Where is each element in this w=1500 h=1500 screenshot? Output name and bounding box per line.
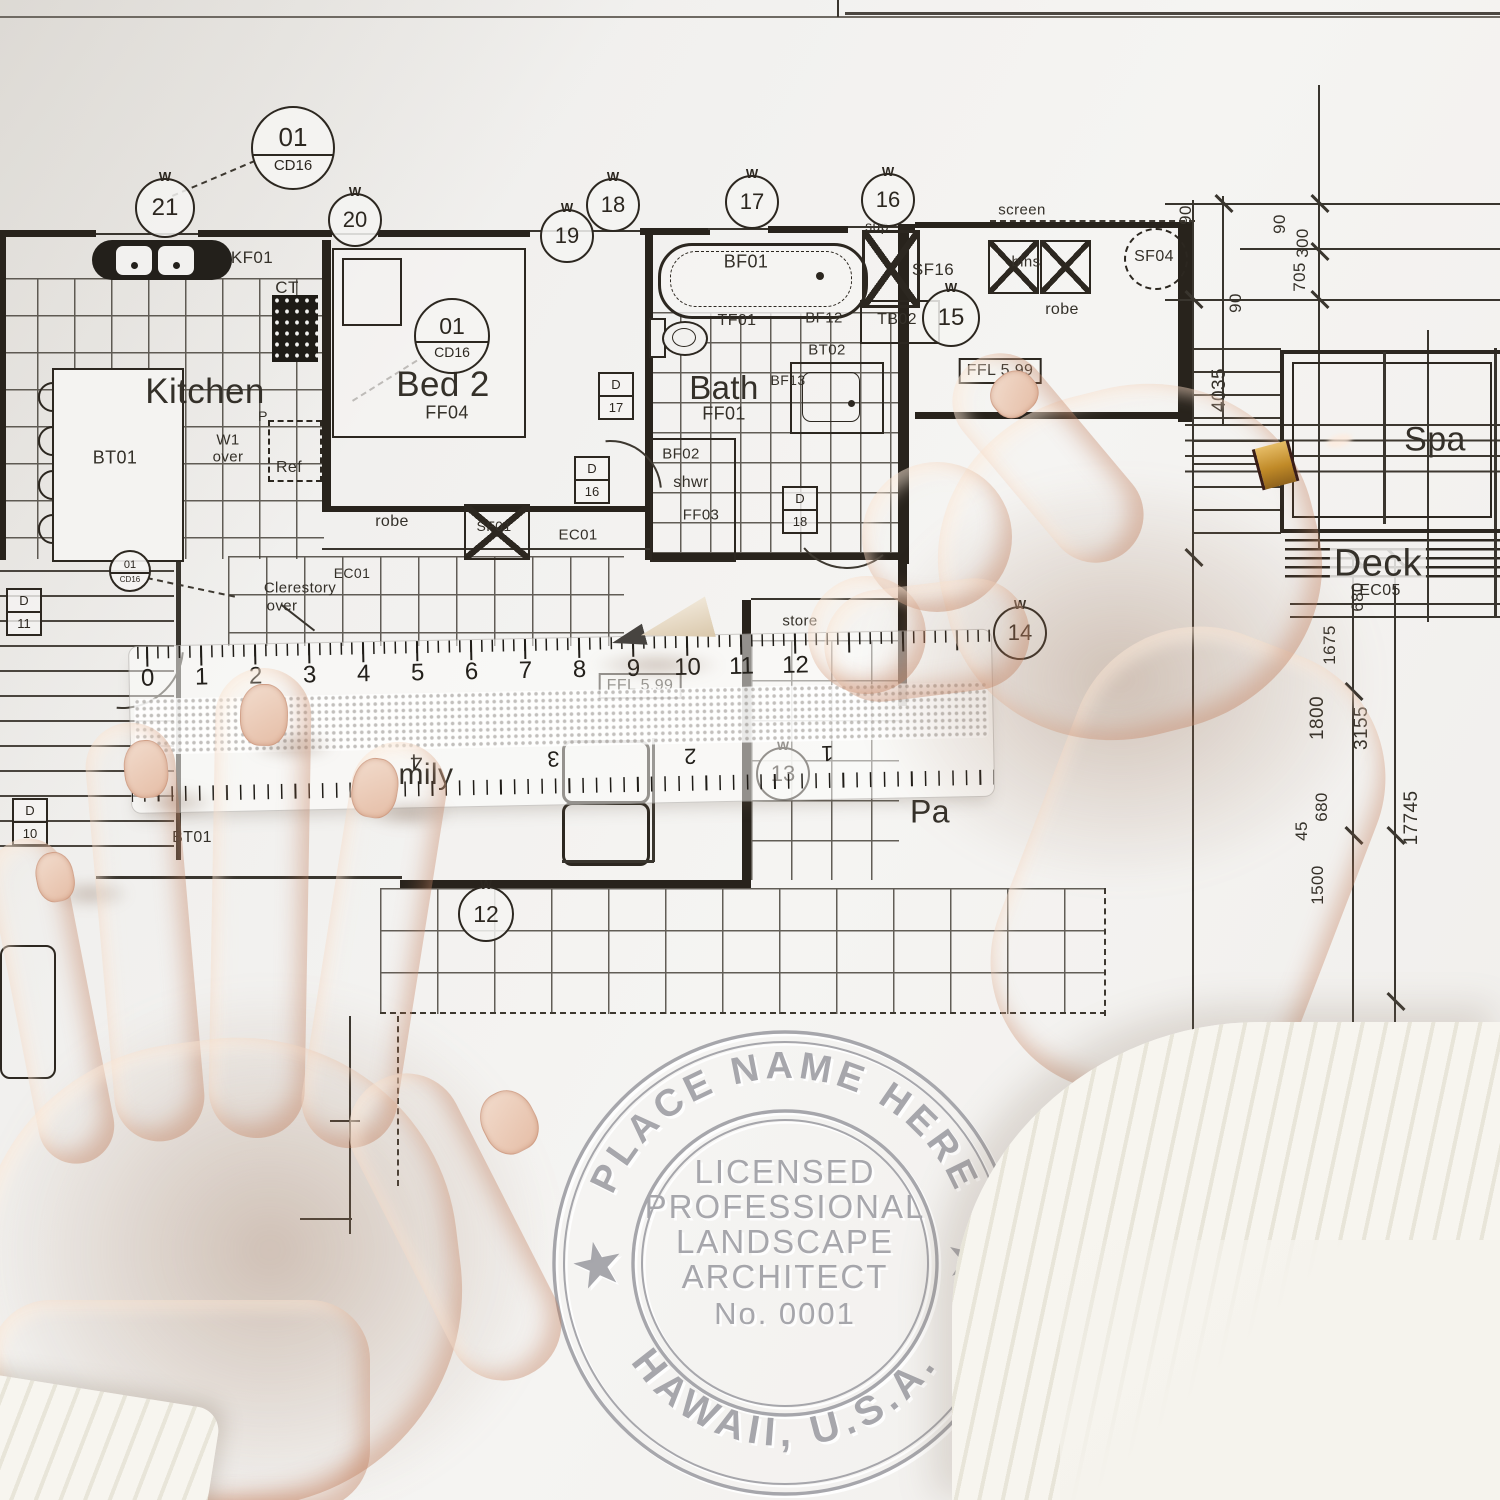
window-number: 21 [152,194,179,222]
room-label-kitchen: Kitchen [145,372,265,412]
dimension-text: 90 [1226,293,1246,313]
bubble-bottom: CD16 [120,575,140,584]
plan-line [0,16,1500,18]
door-number: 18 [784,511,816,532]
toilet-seat [672,328,696,347]
plan-line [845,12,1500,15]
ruler-number: 6 [465,658,479,686]
bubble-divider [253,154,333,156]
bubble-divider [111,572,149,574]
plan-label-bt01: BT01 [93,448,138,469]
seal-line-landscape: LANDSCAPE [676,1223,894,1260]
room-label-bath: Bath [689,369,759,407]
dimension-text: 300 [1293,228,1313,258]
detail-bubble: 01CD16 [251,106,335,190]
plan-label-bf12: BF12 [805,310,842,327]
wall-segment [0,230,96,237]
door-letter: D [8,590,40,613]
door-number: 11 [8,613,40,634]
plan-label-screen: screen [998,202,1045,219]
window-marker-21: W21 [135,178,195,238]
dimension-tick [1310,242,1329,261]
window-number: 19 [555,223,579,249]
w-glyph: W [561,200,573,215]
ruler-number: 4 [357,660,371,688]
door-number: 17 [600,397,632,418]
plan-label-ec01b: EC01 [334,565,371,581]
w-glyph: W [945,280,957,295]
door-letter: D [600,374,632,397]
door-marker-18: D18 [782,486,818,534]
seal-line-number: No. 0001 [714,1296,856,1331]
window-marker-20: W20 [328,193,382,247]
door-letter: D [14,800,46,823]
dimension-text: 17745 [1401,791,1423,846]
door-marker-16: D16 [574,456,610,504]
sink-drain [173,262,180,269]
w-glyph: W [349,184,361,199]
ruler-number: 0 [141,664,155,692]
plan-label-w1: W1 [216,432,239,449]
room-label-spa: Spa [1404,421,1466,460]
pencil-graphite-tip [609,622,649,656]
door-marker-11: D11 [6,588,42,636]
window-number: 18 [601,192,625,218]
bubble-top: 01 [124,559,136,571]
ruler-number: 8 [573,656,587,684]
plan-label-over2: over [267,598,298,615]
bin [1040,240,1091,294]
plan-label-bf13: BF13 [770,372,805,388]
window-line [96,233,198,235]
ruler-number: 3 [303,661,317,689]
sink-drain [131,262,138,269]
photo-scene: KF01 CT Kitchen BT01 W1 over Ref P Bed 2… [0,0,1500,1500]
w-glyph: W [159,169,171,184]
door-number: 16 [576,481,608,502]
sink-bowl [116,246,152,275]
ruler-number: 5 [411,659,425,687]
window-line [708,228,768,230]
plan-label-ff04: FF04 [425,403,469,424]
wall-segment [322,240,331,512]
plan-label-bf02: BF02 [662,446,699,463]
wall-segment [378,230,530,237]
sink-bowl [158,246,194,275]
plan-label-ff03: FF03 [683,507,720,524]
w-glyph: W [882,164,894,179]
ruler-number: 1 [195,663,209,691]
w-glyph: W [480,877,492,892]
wall-segment [0,230,6,560]
window-number: 20 [343,207,367,233]
dimension-text: 705 [1290,262,1310,292]
sofa [562,802,650,866]
ruler-number: 12 [782,651,809,680]
wall-segment [768,226,848,233]
ruler-number-bottom: 1 [821,740,834,766]
wall-segment [400,880,751,888]
plan-label-ref: Ref [276,459,302,477]
detail-bubble: 01CD16 [414,298,490,374]
plan-label-bf01: BF01 [724,252,769,273]
plan-label-clerestory: Clerestory [264,580,336,597]
pillow [342,258,402,326]
dimension-text: 90 [1270,214,1290,234]
plan-label-robe-bed2: robe [375,513,409,531]
screen-line [990,220,1195,222]
w-glyph: W [607,169,619,184]
seal-line-licensed: LICENSED [694,1153,875,1190]
window-marker-15: W15 [922,289,980,347]
cooktop [272,295,318,362]
seal-line-architect: ARCHITECT [682,1258,889,1295]
bubble-top: 01 [279,122,308,153]
bubble-divider [416,341,488,343]
ruler-number: 7 [519,657,533,685]
window-marker-19: W19 [540,209,594,263]
bathtub-drain [816,272,824,280]
left-middle-nail [239,684,288,747]
plan-label-ct: CT [275,278,298,298]
window-marker-17: W17 [725,175,779,229]
sweater-sleeve-right-smooth [1060,1240,1500,1500]
wall-segment [915,222,1180,228]
window-marker-18: W18 [586,178,640,232]
dimension-line [1165,203,1500,205]
plan-label-sf04: SF04 [1134,248,1174,266]
pencil-tip-shadow [592,652,722,678]
dimension-line [1240,248,1500,250]
embossed-seal: PLACE NAME HERE HAWAII, U.S.A. LICENSED … [550,1028,1020,1498]
window-number: 17 [740,189,764,215]
door-letter: D [576,458,608,481]
plan-label-p: P [258,408,268,424]
window-number: 15 [938,304,965,332]
window-number: 12 [473,901,499,928]
plan-label-tf01: TF01 [718,312,757,330]
plan-label-robe: robe [1045,301,1079,319]
plan-label-shwr: shwr [673,474,708,492]
plan-line [837,0,839,17]
plan-label-bt02: BT02 [808,342,845,359]
seal-line-professional: PROFESSIONAL [645,1188,926,1225]
door-letter: D [784,488,816,511]
bubble-top: 01 [439,313,465,340]
plan-label-sf01: SF01 [476,518,511,534]
ruler-number-bottom: 3 [547,745,560,771]
plan-label-kf01: KF01 [231,248,273,268]
bubble-bottom: CD16 [274,157,312,174]
door-marker-17: D17 [598,372,634,420]
sofa-line [562,860,654,863]
detail-bubble: 01CD16 [109,550,151,592]
plan-label-ff01: FF01 [702,404,746,425]
window-number: 16 [876,187,900,213]
dimension-tick [1386,992,1405,1011]
dimension-text: 90 [1176,205,1196,225]
plan-label-ec01: EC01 [558,527,597,544]
dimension-line [1165,299,1500,301]
basin-drain [848,400,855,407]
plan-label-sf16: SF16 [912,260,954,280]
wall-segment [198,230,332,237]
window-marker-16: W16 [861,173,915,227]
basin [802,372,860,422]
plan-label-tb02: TB02 [877,311,917,329]
w-glyph: W [746,166,758,181]
bubble-bottom: CD16 [434,344,470,360]
window-marker-12: W12 [458,886,514,942]
ruler-number-bottom: 2 [684,743,697,769]
plan-label-over: over [213,449,244,466]
plan-label-bins: bins [1011,254,1040,271]
ruler-number: 11 [729,652,754,680]
